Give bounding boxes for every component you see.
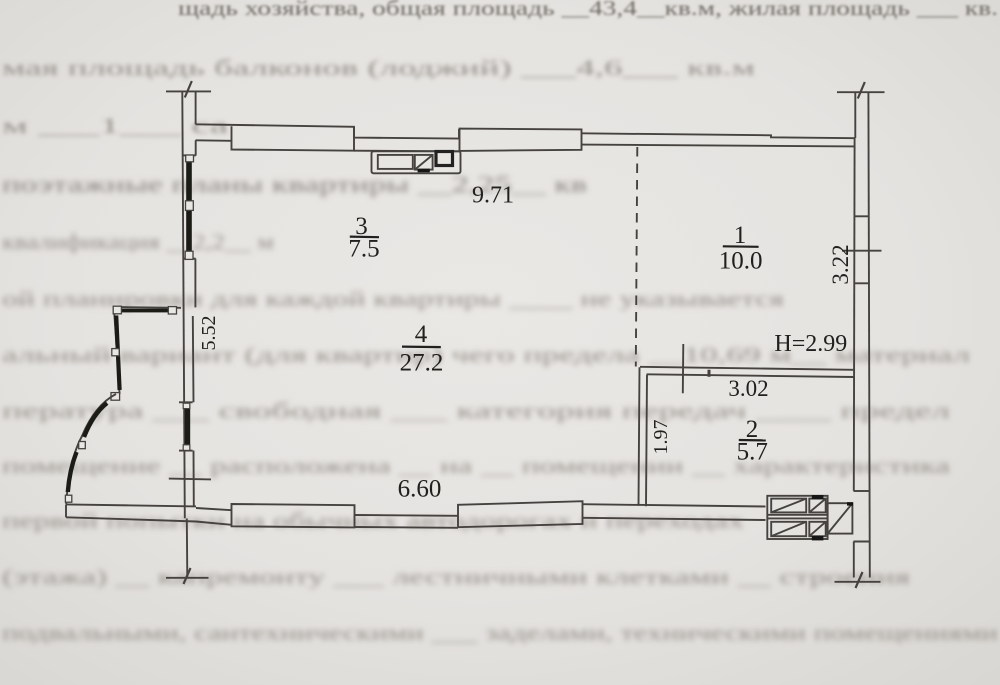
svg-text:1.97: 1.97 — [650, 420, 672, 455]
svg-text:3.22: 3.22 — [828, 244, 853, 284]
svg-text:пература ___ свободная ___: пература ___ свободная ___ категория пер… — [2, 398, 950, 423]
svg-text:первой попытки на обычных авто: первой попытки на обычных автодорогах и … — [2, 508, 744, 533]
svg-text:4: 4 — [415, 321, 428, 348]
svg-text:1: 1 — [734, 222, 747, 249]
svg-text:мая площадь балконов (лоджий): мая площадь балконов (лоджий) ___4,6___ … — [2, 55, 755, 80]
svg-text:10.0: 10.0 — [719, 248, 763, 275]
svg-text:5.52: 5.52 — [198, 316, 220, 351]
svg-text:3.02: 3.02 — [728, 376, 768, 401]
svg-text:(этажа) __ капремонту ___: (этажа) __ капремонту ___ лестничными кл… — [2, 564, 910, 589]
svg-text:27.2: 27.2 — [400, 350, 444, 377]
svg-text:9.71: 9.71 — [472, 183, 514, 209]
svg-text:5.7: 5.7 — [737, 439, 768, 466]
svg-text:H=2.99: H=2.99 — [774, 331, 847, 357]
svg-text:щадь хозяйства, общая площадь: щадь хозяйства, общая площадь __43,4__кв… — [178, 0, 998, 20]
svg-text:6.60: 6.60 — [398, 476, 442, 503]
svg-text:помещение __ расположена __: помещение __ расположена __ на __ помеще… — [2, 453, 950, 478]
svg-text:подвальными, сантехническими: подвальными, сантехническими ___ заделам… — [2, 620, 998, 645]
svg-text:квалификация __2,2__ м: квалификация __2,2__ м — [2, 229, 274, 254]
svg-text:м ___1___ са: м ___1___ са — [2, 113, 228, 138]
svg-text:7.5: 7.5 — [348, 236, 379, 263]
